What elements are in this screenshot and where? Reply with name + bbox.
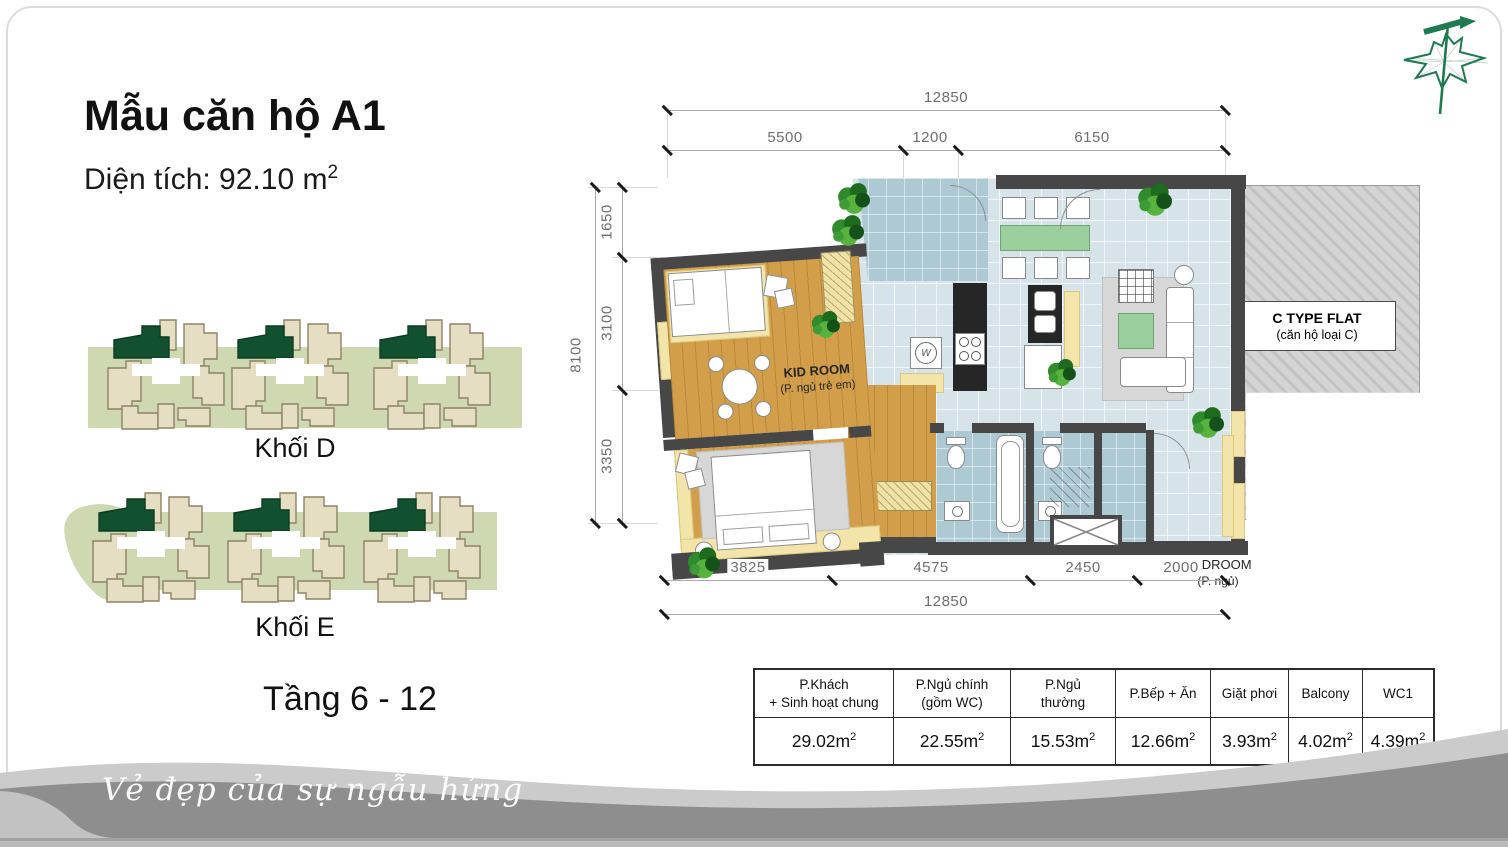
dim-top-1: 5500 xyxy=(764,129,805,146)
area-subtitle: Diện tích: 92.10 m2 xyxy=(84,162,338,197)
dim-line-left-segments xyxy=(622,187,623,523)
toilet-1 xyxy=(947,445,965,469)
footer-slogan: Vẻ đẹp của sự ngẫu hứng xyxy=(102,772,523,808)
toilet-2 xyxy=(1043,445,1061,469)
plant-icon xyxy=(1190,407,1224,439)
block-d-label: Khối D xyxy=(185,433,405,464)
dim-line-bottom-total xyxy=(664,614,1225,615)
shaft xyxy=(1050,515,1122,549)
plant-icon xyxy=(810,311,840,339)
c-flat-label: C TYPE FLAT xyxy=(1239,309,1395,327)
plant-icon xyxy=(830,215,864,247)
washing-machine: W xyxy=(910,337,942,369)
floor-plan: 12850 5500 1200 6150 8100 1650 3100 3350… xyxy=(598,85,1458,695)
dim-line-top-segments xyxy=(667,150,1225,151)
kid-bed xyxy=(668,267,766,337)
block-d-e-map xyxy=(30,300,540,630)
dim-bottom-2: 4575 xyxy=(910,559,951,576)
dim-top-total: 12850 xyxy=(921,89,971,106)
area-superscript: 2 xyxy=(327,162,338,183)
left-wing: KID ROOM (P. ngủ trẻ em) xyxy=(651,243,895,580)
page-title: Mẫu căn hộ A1 xyxy=(84,92,386,141)
dim-left-total: 8100 xyxy=(568,334,585,375)
wall-top xyxy=(996,175,1246,189)
dim-left-2: 3100 xyxy=(599,302,616,343)
dim-bottom-1: 3825 xyxy=(727,559,768,576)
sink-1 xyxy=(944,501,970,521)
dim-bottom-total: 12850 xyxy=(921,593,971,610)
area-text: Diện tích: 92.10 m xyxy=(84,163,327,196)
dim-bottom-3: 2450 xyxy=(1062,559,1103,576)
block-e-label: Khối E xyxy=(185,612,405,643)
c-type-flat-labelbox: C TYPE FLAT (căn hộ loại C) xyxy=(1238,301,1396,351)
c-flat-sublabel: (căn hộ loại C) xyxy=(1239,327,1395,343)
master-bed xyxy=(711,450,817,551)
dim-top-3: 6150 xyxy=(1071,129,1112,146)
shower xyxy=(1050,467,1090,507)
dim-line-left-total xyxy=(595,187,596,523)
dim-left-3: 3350 xyxy=(599,435,616,476)
coffee-table xyxy=(1118,313,1154,349)
plant-icon xyxy=(836,183,870,215)
dim-bottom-4: 2000 xyxy=(1160,559,1201,576)
dim-line-top-total xyxy=(667,110,1225,111)
plant-icon xyxy=(685,546,721,580)
slide: { "header": { "title": "Mẫu căn hộ A1", … xyxy=(0,0,1508,847)
floors-label: Tầng 6 - 12 xyxy=(170,680,530,719)
washing-machine-glyph: W xyxy=(915,342,937,364)
bathtub xyxy=(996,435,1024,533)
plant-icon xyxy=(1136,183,1172,217)
dim-left-1: 1650 xyxy=(599,201,616,242)
tv-shelf xyxy=(1118,269,1154,303)
plant-icon xyxy=(1046,359,1076,387)
dim-top-2: 1200 xyxy=(909,129,950,146)
stove xyxy=(955,333,985,365)
